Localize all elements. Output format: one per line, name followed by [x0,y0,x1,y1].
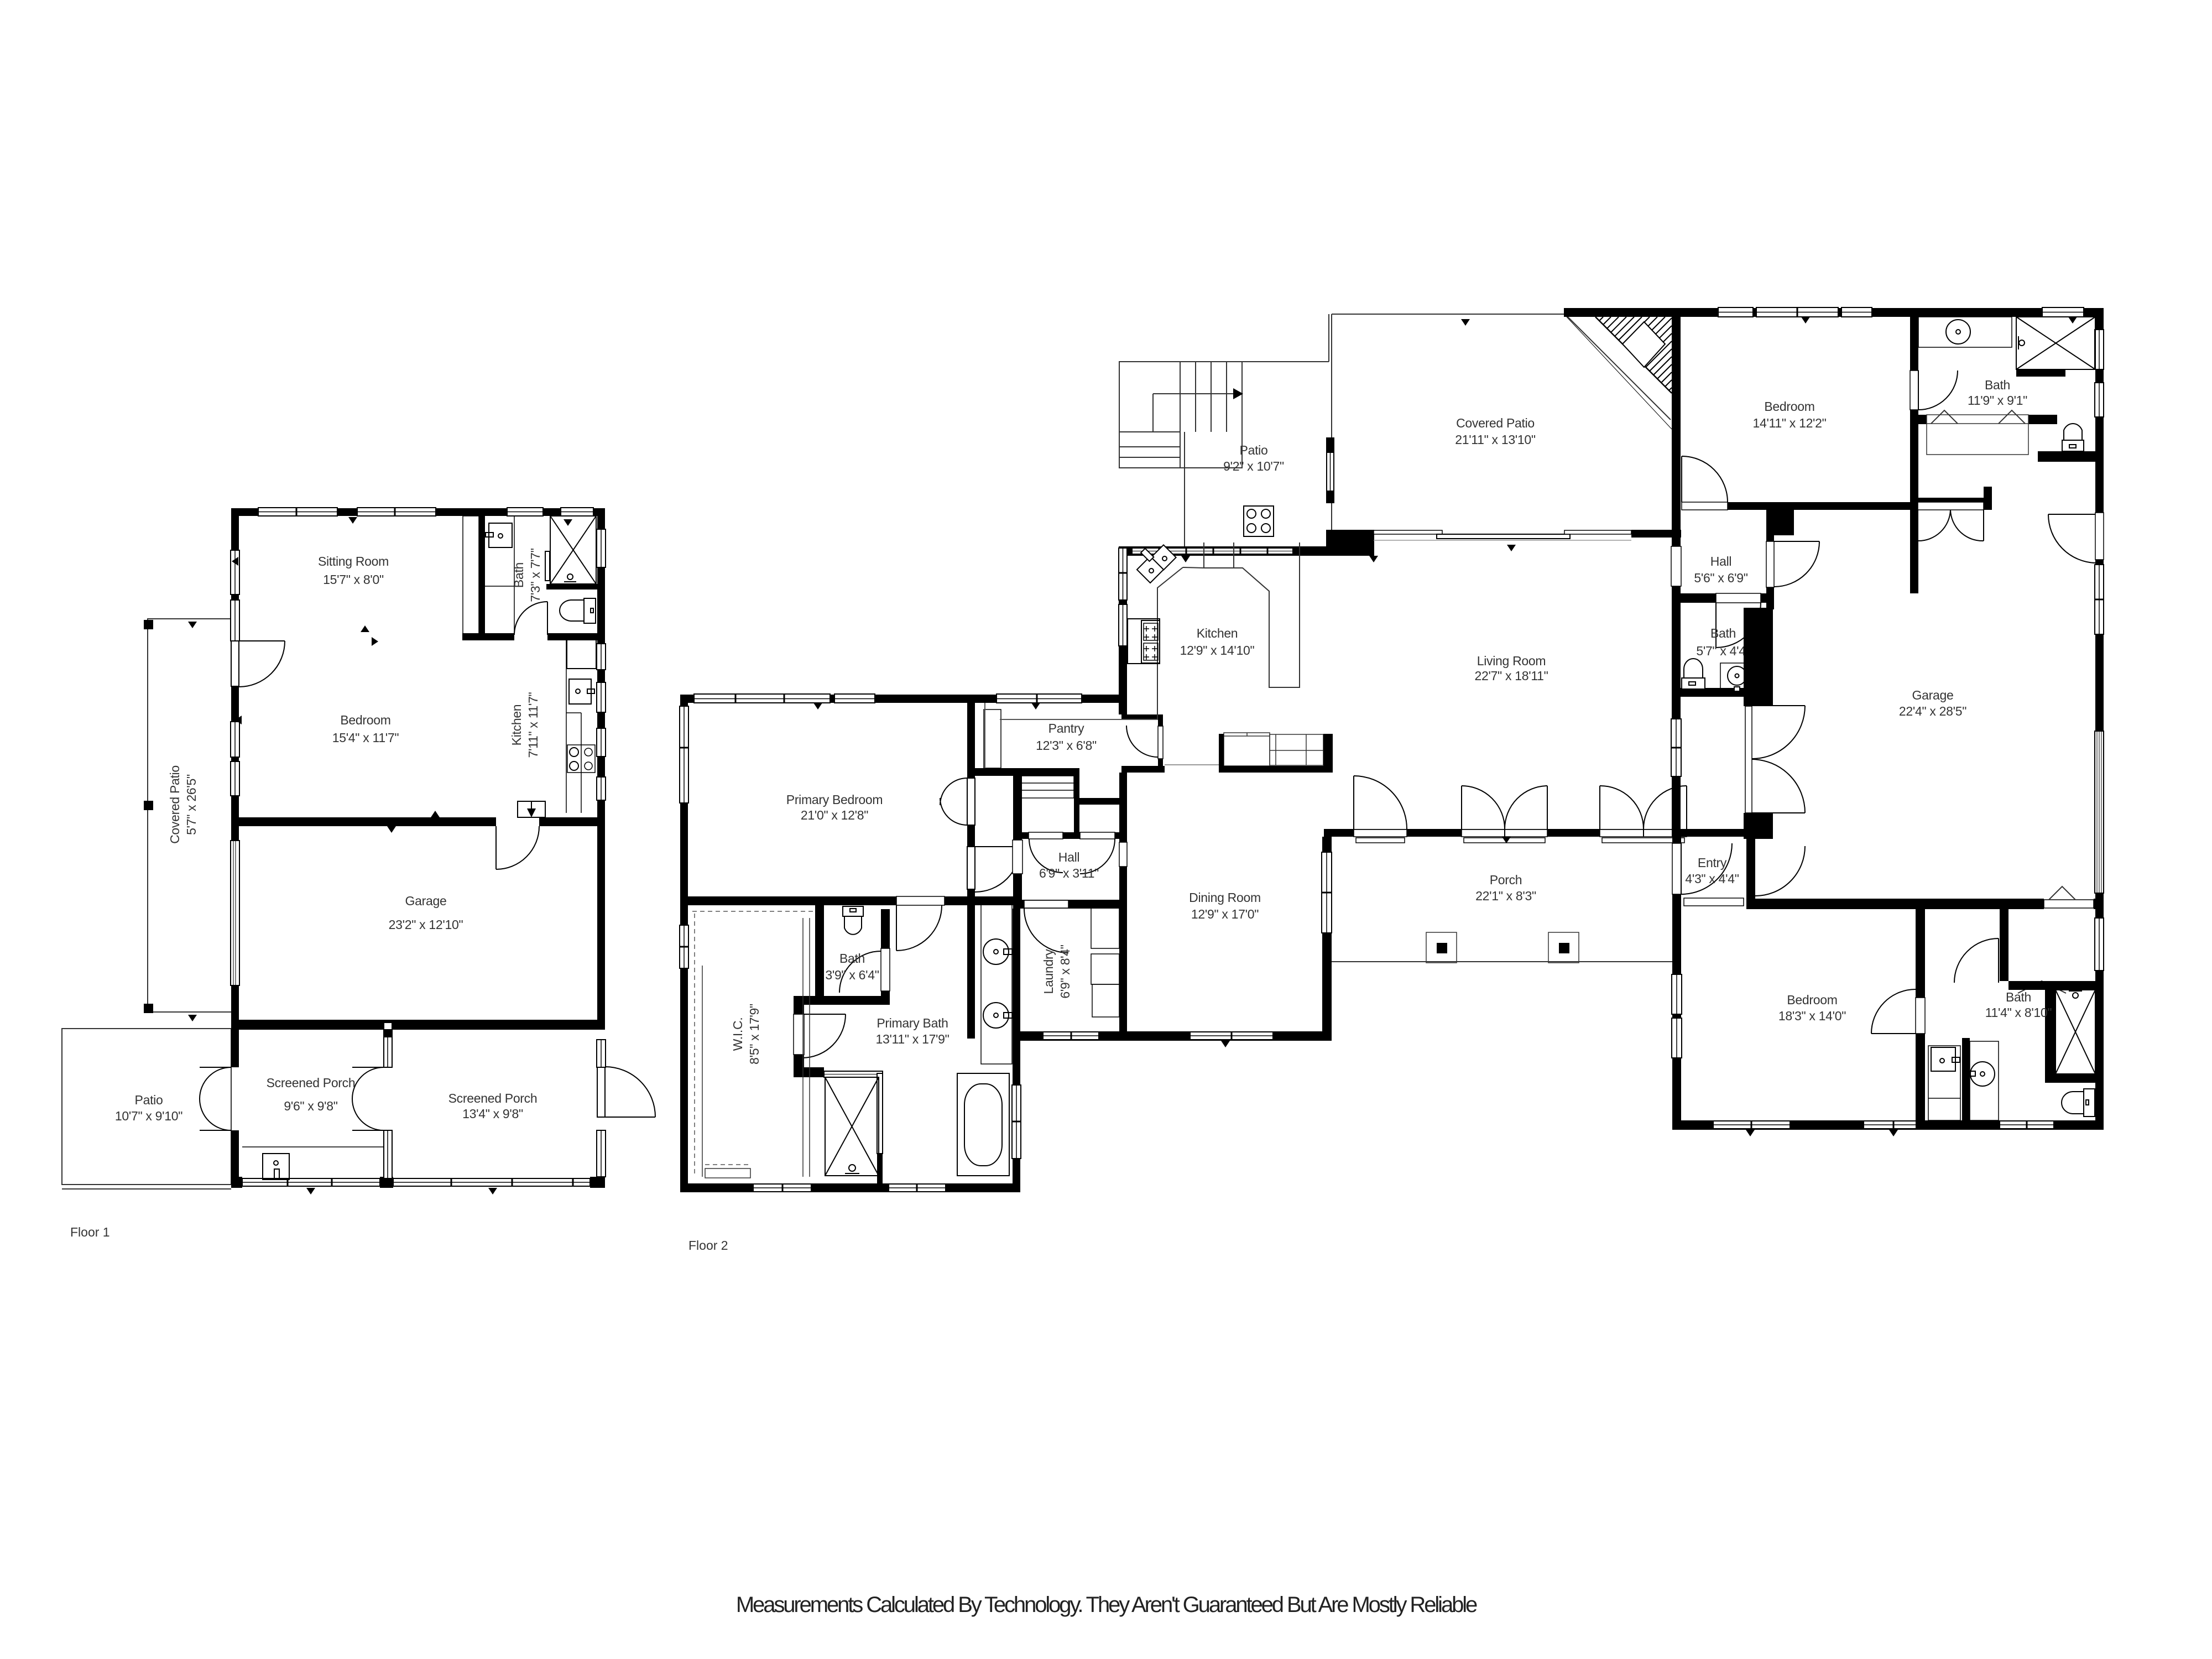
svg-text:18'3" x 14'0": 18'3" x 14'0" [1778,1009,1846,1023]
svg-text:5'7" x 4'4": 5'7" x 4'4" [1696,644,1750,658]
svg-text:Porch: Porch [1490,873,1522,887]
svg-text:Bedroom: Bedroom [1764,399,1814,414]
svg-text:23'2" x 12'10": 23'2" x 12'10" [389,917,463,932]
svg-text:Hall: Hall [1058,850,1079,864]
svg-text:3'9" x 6'4": 3'9" x 6'4" [825,968,879,982]
svg-text:22'4" x 28'5": 22'4" x 28'5" [1899,704,1966,718]
svg-text:Kitchen: Kitchen [1197,626,1238,640]
svg-text:Garage: Garage [405,894,447,908]
svg-text:Bath: Bath [2006,990,2031,1004]
svg-text:6'9" x 8'4": 6'9" x 8'4" [1058,945,1072,998]
svg-text:14'11" x 12'2": 14'11" x 12'2" [1752,416,1826,430]
svg-text:7'11" x 11'7": 7'11" x 11'7" [526,692,540,758]
svg-text:9'2" x 10'7": 9'2" x 10'7" [1223,459,1284,473]
svg-text:Primary Bedroom: Primary Bedroom [786,792,883,807]
svg-text:9'6" x 9'8": 9'6" x 9'8" [284,1099,337,1113]
svg-text:21'0" x 12'8": 21'0" x 12'8" [801,808,868,822]
svg-text:Measurements Calculated By Tec: Measurements Calculated By Technology. T… [736,1593,1477,1617]
svg-text:Bath: Bath [512,562,526,588]
svg-text:8'5" x 17'9": 8'5" x 17'9" [747,1004,761,1065]
svg-text:Floor 1: Floor 1 [70,1225,110,1239]
svg-text:Floor 2: Floor 2 [688,1238,728,1253]
svg-text:Bath: Bath [839,951,865,966]
svg-text:Primary Bath: Primary Bath [877,1016,948,1030]
svg-text:21'11" x 13'10": 21'11" x 13'10" [1455,432,1536,447]
svg-text:W.I.C.: W.I.C. [731,1018,745,1051]
svg-text:Sitting Room: Sitting Room [318,554,389,568]
svg-text:Bath: Bath [1985,378,2010,392]
svg-text:10'7" x 9'10": 10'7" x 9'10" [115,1109,182,1123]
svg-text:Kitchen: Kitchen [509,705,524,746]
svg-text:15'7" x 8'0": 15'7" x 8'0" [323,572,384,587]
svg-text:Bedroom: Bedroom [1787,993,1837,1007]
svg-text:Entry: Entry [1698,855,1727,870]
svg-text:Covered Patio: Covered Patio [168,765,182,844]
svg-text:Hall: Hall [1710,554,1731,568]
svg-text:Dining Room: Dining Room [1189,890,1261,905]
svg-text:Living Room: Living Room [1477,654,1546,668]
svg-text:5'7" x 26'5": 5'7" x 26'5" [184,774,199,835]
svg-text:Screened Porch: Screened Porch [267,1076,356,1090]
svg-text:12'3" x 6'8": 12'3" x 6'8" [1036,738,1097,753]
svg-text:11'4" x 8'10": 11'4" x 8'10" [1985,1005,2052,1020]
svg-text:7'3" x 7'7": 7'3" x 7'7" [528,548,542,602]
svg-text:Patio: Patio [135,1093,163,1107]
svg-text:Bath: Bath [1710,626,1736,640]
svg-text:Garage: Garage [1912,688,1954,702]
svg-text:11'9" x 9'1": 11'9" x 9'1" [1968,393,2027,408]
svg-text:13'4" x 9'8": 13'4" x 9'8" [462,1107,523,1121]
svg-text:Patio: Patio [1240,443,1268,457]
svg-text:12'9" x 17'0": 12'9" x 17'0" [1191,907,1259,921]
svg-text:12'9" x 14'10": 12'9" x 14'10" [1180,643,1255,658]
svg-text:6'9" x 3'11": 6'9" x 3'11" [1039,866,1099,880]
svg-text:Laundry: Laundry [1041,949,1056,994]
svg-text:4'3" x 4'4": 4'3" x 4'4" [1685,872,1739,886]
svg-text:15'4" x 11'7": 15'4" x 11'7" [332,731,399,745]
svg-text:5'6" x 6'9": 5'6" x 6'9" [1694,571,1747,585]
svg-text:Screened Porch: Screened Porch [448,1091,538,1105]
svg-text:Covered Patio: Covered Patio [1456,416,1535,430]
svg-text:22'7" x 18'11": 22'7" x 18'11" [1474,669,1548,683]
svg-text:22'1" x 8'3": 22'1" x 8'3" [1475,889,1536,903]
svg-text:Pantry: Pantry [1048,721,1084,735]
svg-text:13'11" x 17'9": 13'11" x 17'9" [875,1032,949,1046]
svg-text:Bedroom: Bedroom [340,713,390,727]
